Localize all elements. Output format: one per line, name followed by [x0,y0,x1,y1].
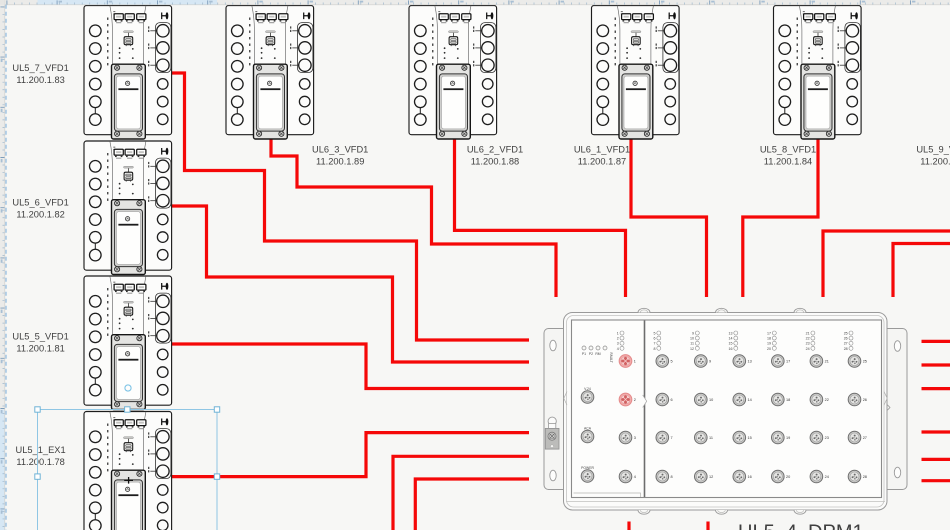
svg-text:11.200.1.89: 11.200.1.89 [316,156,364,166]
svg-text:12: 12 [709,475,713,479]
svg-text:FAULT: FAULT [609,353,613,363]
svg-text:5: 5 [671,360,673,364]
svg-text:11.200.1.87: 11.200.1.87 [578,156,626,166]
svg-text:3: 3 [617,342,619,346]
svg-text:1: 1 [634,360,636,364]
svg-text:15: 15 [729,342,733,346]
svg-text:P2: P2 [589,352,593,356]
svg-text:10: 10 [690,337,694,341]
svg-text:11: 11 [709,436,713,440]
svg-text:9: 9 [709,360,711,364]
svg-text:11.200.1.85: 11.200.1.85 [920,156,950,166]
svg-text:UL5_5_VFD1: UL5_5_VFD1 [12,332,68,342]
svg-text:23: 23 [825,436,829,440]
svg-text:UL5_4_DPM1: UL5_4_DPM1 [738,522,864,530]
svg-text:28: 28 [844,347,848,351]
svg-text:UL5_7_VFD1: UL5_7_VFD1 [12,63,68,73]
svg-text:11.200.1.88: 11.200.1.88 [471,156,519,166]
svg-text:3: 3 [634,436,636,440]
svg-text:10: 10 [709,398,713,402]
svg-text:15: 15 [748,436,752,440]
svg-text:26: 26 [863,398,867,402]
svg-text:13: 13 [748,360,752,364]
svg-text:21: 21 [825,360,829,364]
svg-text:21: 21 [806,332,810,336]
svg-text:18: 18 [767,337,771,341]
svg-text:11.200.1.81: 11.200.1.81 [16,344,64,354]
svg-text:8: 8 [654,347,656,351]
svg-text:1: 1 [617,332,619,336]
svg-text:6: 6 [671,398,673,402]
svg-text:11.200.1.82: 11.200.1.82 [16,210,64,220]
svg-text:UL6_2_VFD1: UL6_2_VFD1 [467,144,523,154]
svg-text:7: 7 [671,436,673,440]
svg-text:11: 11 [690,342,694,346]
svg-text:20: 20 [767,347,771,351]
svg-text:27: 27 [863,436,867,440]
svg-text:4: 4 [617,347,619,351]
svg-text:25: 25 [863,360,867,364]
svg-text:RM: RM [595,352,600,356]
svg-text:18: 18 [786,398,790,402]
svg-text:27: 27 [844,342,848,346]
svg-text:19: 19 [767,342,771,346]
svg-text:9: 9 [692,332,694,336]
svg-text:P1: P1 [582,352,586,356]
svg-text:11.200.1.84: 11.200.1.84 [764,156,812,166]
svg-text:13: 13 [729,332,733,336]
svg-text:22: 22 [825,398,829,402]
svg-text:2: 2 [634,398,636,402]
svg-text:UL5_1_EX1: UL5_1_EX1 [16,445,66,455]
svg-text:11.200.1.83: 11.200.1.83 [16,75,64,85]
svg-text:14: 14 [748,398,752,402]
svg-text:UL6_1_VFD1: UL6_1_VFD1 [574,144,630,154]
svg-text:6: 6 [654,337,656,341]
svg-text:23: 23 [806,342,810,346]
svg-text:16: 16 [748,475,752,479]
svg-text:12: 12 [690,347,694,351]
svg-text:UL5_9_VFD1: UL5_9_VFD1 [916,144,950,154]
svg-text:UL5_8_VFD1: UL5_8_VFD1 [760,144,816,154]
svg-text:17: 17 [786,360,790,364]
svg-text:5: 5 [654,332,656,336]
svg-text:UL5_6_VFD1: UL5_6_VFD1 [12,198,68,208]
svg-text:2: 2 [617,337,619,341]
svg-text:11.200.1.78: 11.200.1.78 [16,457,64,467]
svg-text:20: 20 [786,475,790,479]
svg-text:25: 25 [844,332,848,336]
svg-text:22: 22 [806,337,810,341]
svg-text:19: 19 [786,436,790,440]
svg-text:4: 4 [634,475,636,479]
svg-text:14: 14 [729,337,733,341]
svg-text:8: 8 [671,475,673,479]
svg-text:17: 17 [767,332,771,336]
svg-text:24: 24 [825,475,829,479]
svg-text:7: 7 [654,342,656,346]
svg-text:26: 26 [844,337,848,341]
svg-text:16: 16 [729,347,733,351]
svg-text:24: 24 [806,347,810,351]
svg-text:UL6_3_VFD1: UL6_3_VFD1 [312,144,368,154]
svg-text:28: 28 [863,475,867,479]
